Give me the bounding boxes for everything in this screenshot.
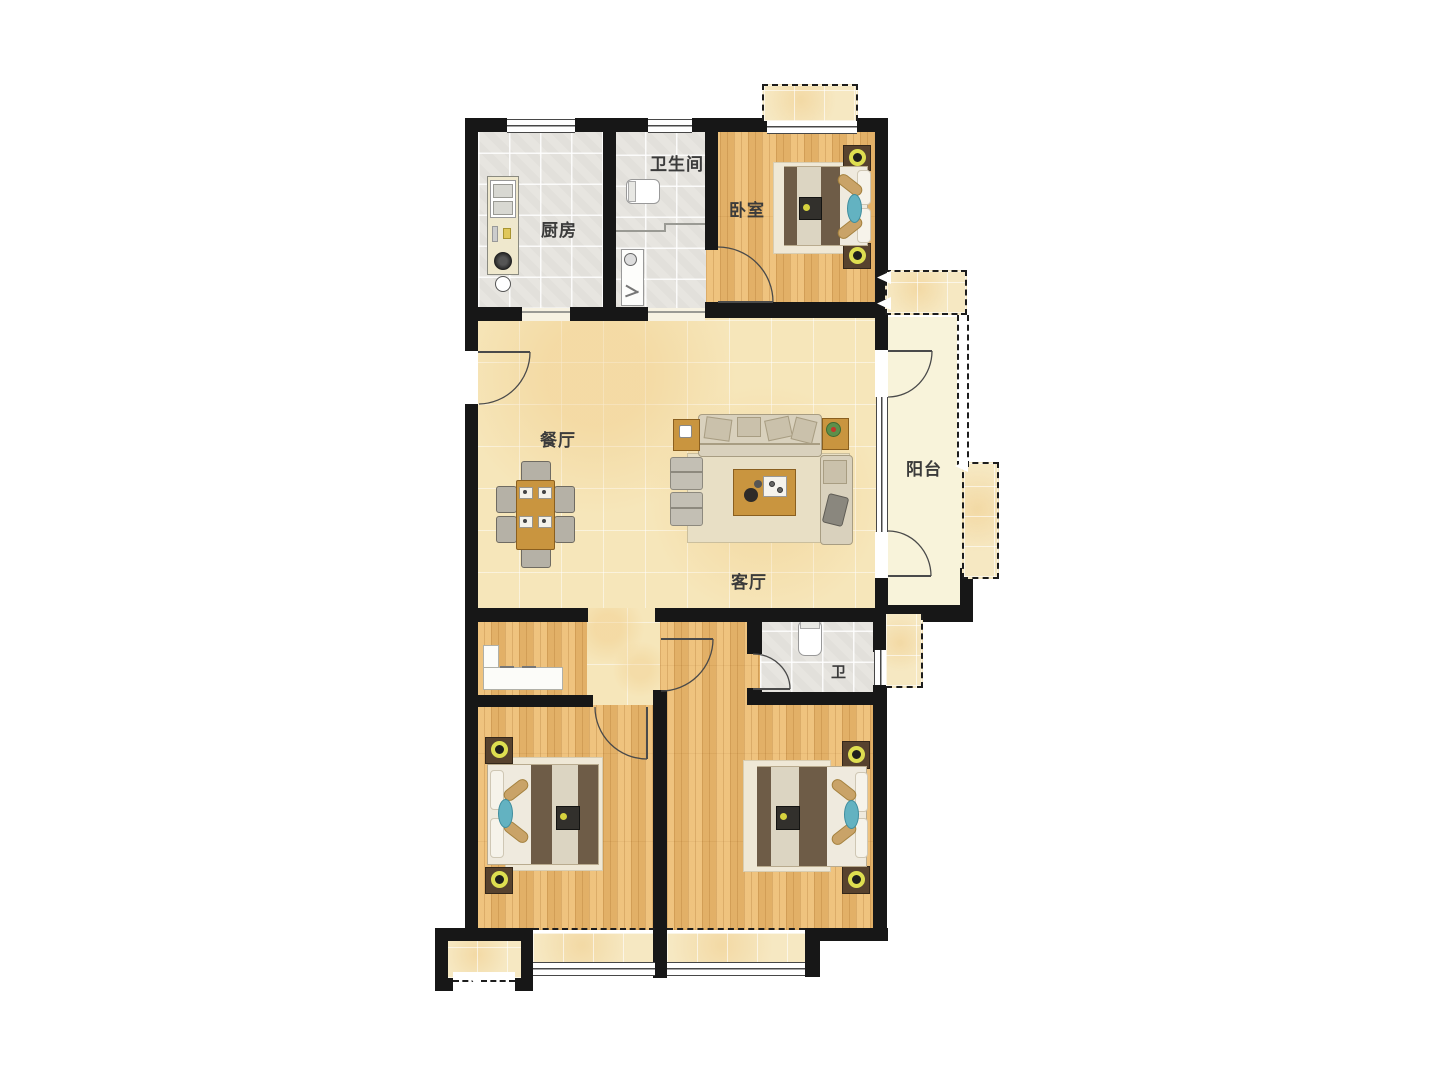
entry-opening [465, 351, 478, 404]
bed-tray-dot [803, 204, 810, 211]
wall [705, 118, 718, 250]
kitchen-sink-basin-2 [493, 201, 513, 215]
teacup-icon-1 [754, 480, 762, 488]
place-dot-3 [523, 519, 527, 523]
armchair-2-seam [671, 507, 702, 509]
balcony-door-top-opening [875, 350, 888, 397]
bed-tray-dot [560, 813, 567, 820]
teal-cushion [847, 194, 862, 223]
wall [515, 978, 533, 991]
bay-top-platform [762, 84, 858, 121]
kitchen-dial-icon [495, 276, 511, 292]
room-label-toilet: 卫 [831, 661, 847, 682]
bay1-window [533, 962, 655, 976]
coffee-tray [763, 476, 787, 497]
dining-chair-bottom [521, 547, 551, 568]
sofa-seat-line [700, 443, 820, 445]
balcony-fixed-window [876, 397, 888, 532]
dining-chair-left-2 [496, 516, 517, 543]
lamp-icon [848, 871, 865, 888]
kitchen-stove-burner-icon [494, 252, 512, 270]
dining-chair-left-1 [496, 486, 517, 513]
bathroom-doorway [648, 308, 705, 321]
wall [465, 307, 522, 321]
teacup-icon-3 [777, 487, 783, 493]
wall [465, 404, 478, 928]
wall [747, 692, 878, 705]
nook-desk-tick-1 [500, 666, 514, 668]
ac-platform-2 [962, 462, 999, 579]
wall [435, 978, 453, 991]
sofa-cushion-2 [737, 417, 761, 437]
nook-desk-tick-2 [522, 666, 536, 668]
wall [610, 307, 648, 321]
plant-icon [826, 422, 841, 437]
teal-cushion [498, 799, 513, 828]
dining-chair-right-1 [554, 486, 575, 513]
sofa-cushion-1 [704, 416, 733, 441]
bay1-dashed-edge [533, 928, 655, 936]
wall [653, 928, 667, 978]
nook-desk-horizontal [483, 667, 563, 690]
kitchen-window [507, 119, 575, 133]
toilet-side-platform [886, 614, 923, 688]
armchair-1 [670, 457, 703, 490]
balcony-door-bottom-opening [875, 532, 888, 578]
dining-chair-top [521, 461, 551, 482]
bedroom-right-door [661, 639, 715, 693]
teacup-icon-2 [769, 481, 775, 487]
shower-partition-c [666, 223, 708, 225]
kitchen-rack [492, 226, 498, 242]
hallway-floor [585, 608, 662, 707]
toilet-door [753, 654, 792, 691]
armchair-1-seam [671, 471, 702, 473]
place-dot-4 [542, 519, 546, 523]
bay2-floor [667, 933, 805, 964]
sectional-cushion-1 [823, 460, 847, 484]
wall [521, 928, 533, 978]
shower-partition-a [616, 230, 666, 232]
wall [873, 700, 887, 940]
teapot-icon [744, 488, 758, 502]
armchair-2 [670, 492, 703, 526]
bedroom-top-door [718, 247, 775, 304]
place-dot-1 [523, 490, 527, 494]
wall [465, 608, 588, 622]
kitchen-sink-basin-1 [493, 184, 513, 198]
bedroom-top-bay-window [767, 119, 857, 134]
teal-cushion [844, 800, 859, 829]
side-table-lamp-icon [679, 425, 692, 438]
wall [708, 302, 888, 318]
room-label-balcony: 阳台 [906, 455, 942, 480]
wall [747, 608, 762, 654]
lamp-icon [491, 741, 508, 758]
room-label-bathroom: 卫生间 [650, 150, 704, 175]
wall [435, 928, 533, 941]
entry-box-dashed-edge [453, 972, 515, 982]
room-label-kitchen: 厨房 [541, 216, 577, 241]
floorplan-canvas: 厨房 卫生间 卧室 餐厅 客厅 阳台 卫 [0, 0, 1440, 1080]
bay2-window [667, 962, 805, 976]
balcony-door-bottom [888, 531, 933, 577]
wall [603, 130, 616, 310]
wall [805, 938, 820, 977]
wall [655, 608, 877, 622]
wall [873, 620, 887, 652]
lamp-icon [849, 149, 866, 166]
bathroom-window [648, 119, 692, 133]
vanity-sink-icon [624, 253, 637, 266]
lamp-icon [849, 247, 866, 264]
ac-platform-1 [885, 270, 967, 315]
bed-tray-dot [780, 813, 787, 820]
bathroom-doorway-track [648, 311, 705, 313]
bedroom-left-door [595, 707, 649, 761]
bay1-floor [533, 933, 655, 964]
kitchen-doorway-track [522, 311, 570, 313]
room-label-bedroom: 卧室 [729, 196, 765, 221]
dining-chair-right-2 [554, 516, 575, 543]
lamp-icon [848, 746, 865, 763]
bay2-dashed-edge [667, 928, 805, 936]
kitchen-board [503, 228, 511, 239]
lamp-icon [491, 871, 508, 888]
balcony-door-top [888, 351, 934, 398]
toilet-small-tank [800, 621, 820, 629]
entry-door [478, 351, 534, 406]
balcony-open-railing [957, 315, 969, 467]
room-label-living: 客厅 [731, 568, 767, 593]
wall [692, 118, 767, 132]
toilet-main-tank [628, 181, 636, 202]
kitchen-doorway [522, 308, 570, 321]
room-label-dining: 餐厅 [540, 426, 576, 451]
wall [875, 118, 888, 268]
place-dot-2 [542, 490, 546, 494]
wall [465, 695, 593, 707]
